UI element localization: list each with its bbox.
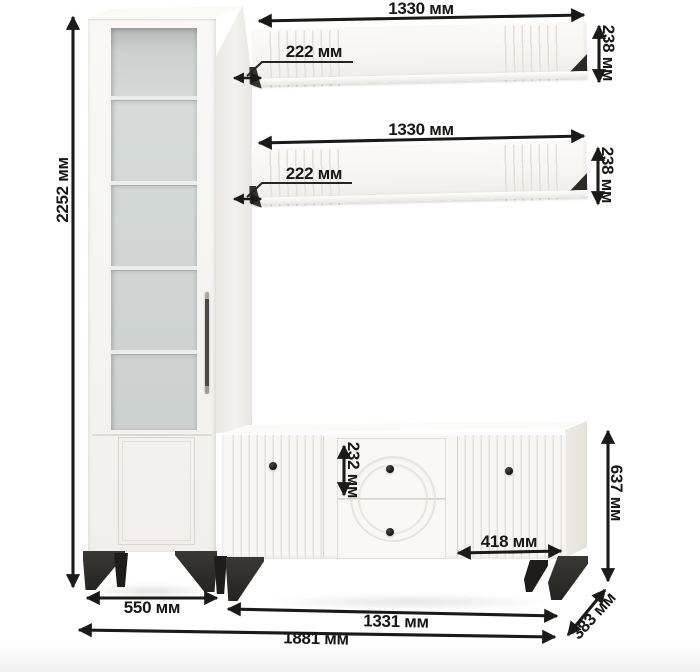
furniture-dimension-diagram: 2252 мм 1330 мм 238 мм 222 мм 1330 мм 23… [0, 0, 700, 672]
dim-label-shelf-top-width: 1330 мм [388, 0, 454, 19]
glass-shelf [111, 181, 197, 186]
dim-label-shelf-top-depth: 222 мм [286, 42, 342, 62]
cabinet-lower-door-panel [118, 437, 195, 545]
dim-label-shelf-bottom-depth: 222 мм [286, 164, 342, 184]
glass-shelf [111, 350, 197, 355]
floor-shadow-band [0, 644, 700, 672]
sideboard-floor-shadow [215, 593, 605, 611]
dim-label-shelf-top-height: 238 мм [598, 25, 618, 81]
dim-label-sideboard-height: 637 мм [606, 465, 626, 521]
door-handle [205, 292, 209, 394]
cabinet-side-panel [216, 5, 252, 433]
display-cabinet [88, 19, 216, 552]
dim-label-right-door-width: 418 мм [481, 532, 537, 552]
dim-label-sideboard-width: 1331 мм [363, 611, 429, 632]
dim-label-shelf-bottom-height: 238 мм [597, 147, 617, 203]
dim-label-cabinet-height: 2252 мм [53, 157, 73, 223]
drawer-knob-top [386, 465, 394, 473]
glass-shelf [111, 96, 197, 101]
right-door-knob [505, 467, 513, 475]
dim-label-total-width: 1881 мм [283, 628, 349, 649]
sideboard-leg-front-left [226, 557, 264, 601]
cabinet-leg-back-left [114, 553, 128, 587]
panel-divider [323, 436, 324, 557]
sideboard-leg-back-right [524, 560, 548, 592]
sideboard-left-door [226, 435, 323, 558]
door-seam [92, 434, 212, 436]
dim-label-drawer-height: 232 мм [343, 442, 363, 498]
dim-label-cabinet-width: 550 мм [124, 598, 180, 618]
drawer-split-line [338, 498, 445, 500]
sideboard-leg-front-right [548, 556, 588, 600]
glass-door [111, 28, 197, 430]
drawer-knob-bottom [386, 528, 394, 536]
dim-label-shelf-bottom-width: 1330 мм [388, 120, 454, 140]
glass-shelf [111, 266, 197, 271]
sideboard-side-face [565, 421, 588, 558]
left-door-knob [269, 462, 277, 470]
